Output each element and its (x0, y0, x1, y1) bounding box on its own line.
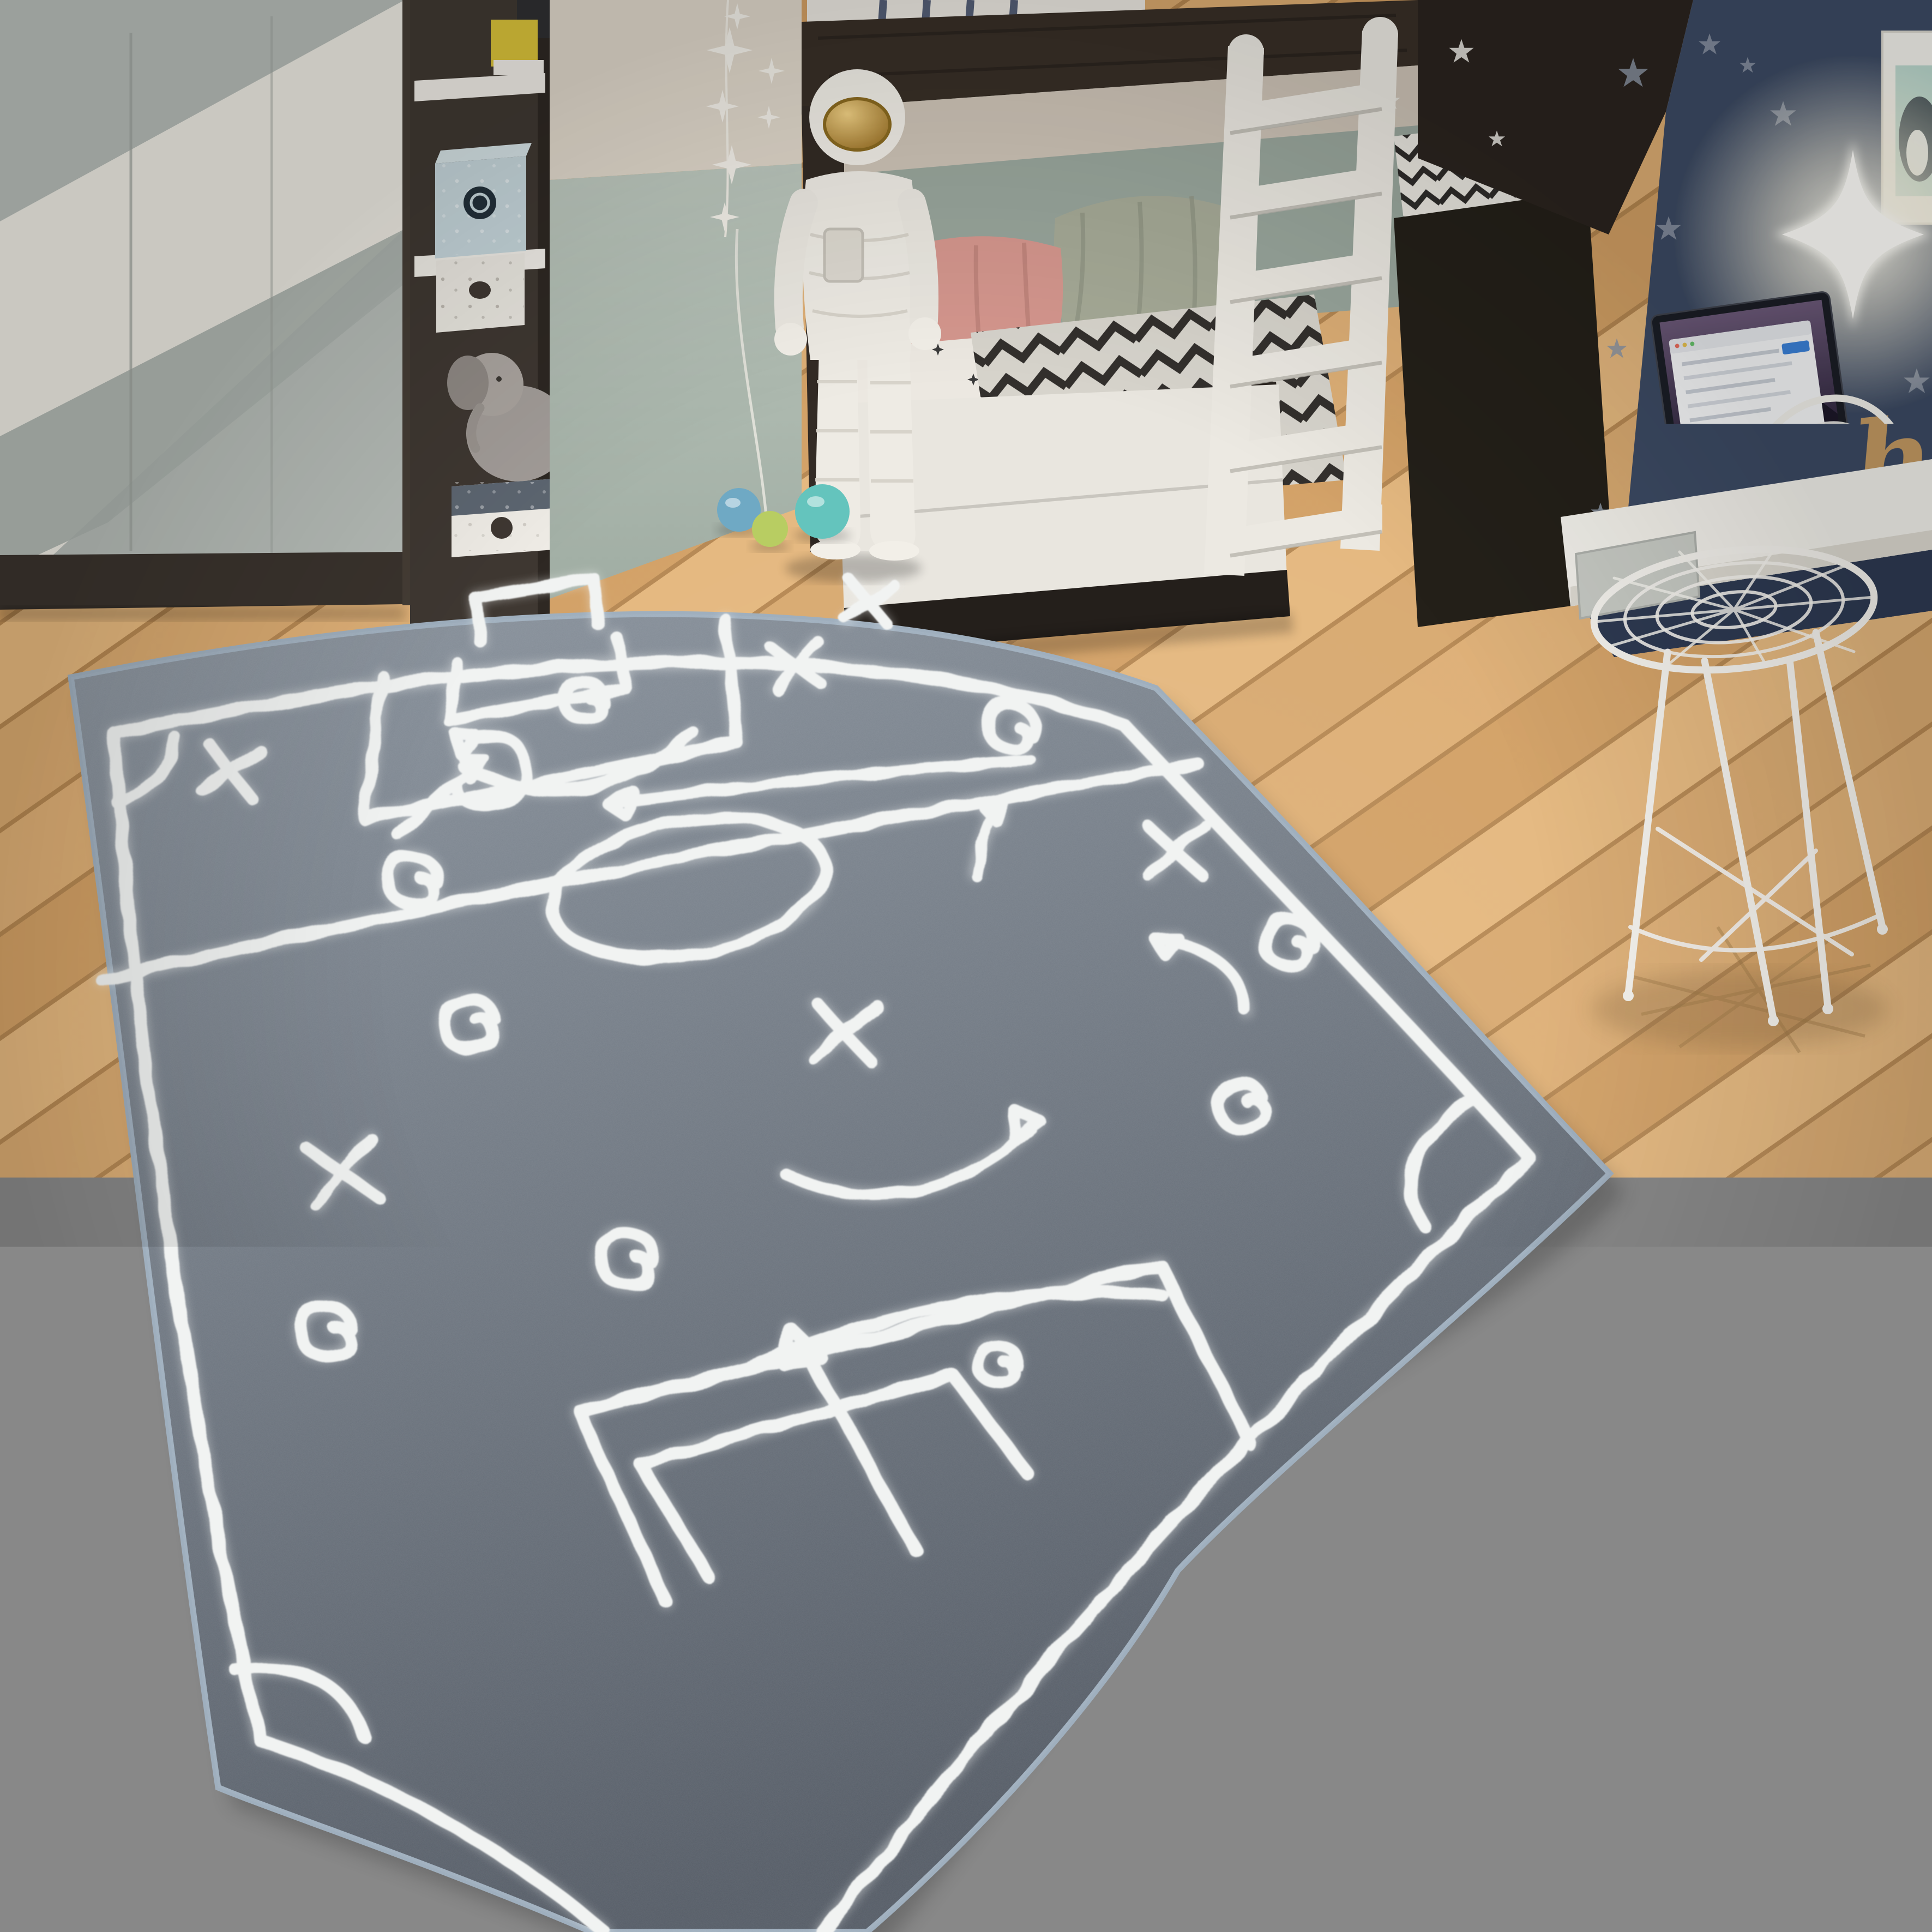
kids-room-scene: hello (0, 0, 1932, 1932)
vignette (0, 0, 1932, 1932)
